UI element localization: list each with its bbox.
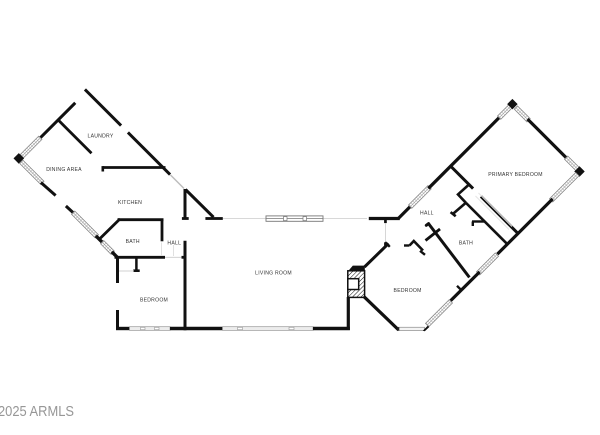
svg-text:HALL: HALL — [167, 240, 181, 246]
svg-text:2025 ARMLS: 2025 ARMLS — [0, 404, 74, 420]
svg-text:HALL: HALL — [420, 210, 434, 216]
svg-text:DINING AREA: DINING AREA — [46, 167, 82, 173]
svg-text:BEDROOM: BEDROOM — [140, 297, 168, 303]
svg-text:LIVING ROOM: LIVING ROOM — [255, 270, 292, 276]
svg-text:BEDROOM: BEDROOM — [394, 288, 422, 294]
svg-text:BATH: BATH — [459, 241, 473, 247]
svg-text:BATH: BATH — [126, 239, 140, 245]
svg-text:KITCHEN: KITCHEN — [118, 200, 142, 206]
svg-text:LAUNDRY: LAUNDRY — [88, 133, 114, 139]
svg-text:PRIMARY BEDROOM: PRIMARY BEDROOM — [488, 172, 543, 178]
